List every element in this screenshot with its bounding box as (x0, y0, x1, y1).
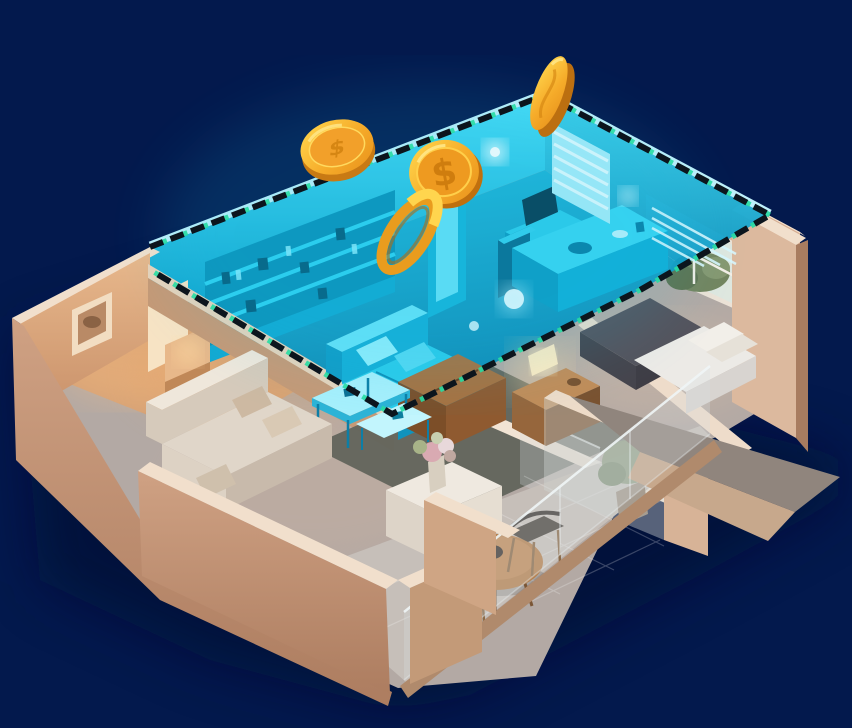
dollar-symbol: $ (328, 134, 346, 162)
hero-illustration: $ $ (0, 0, 852, 728)
apartment-scene-svg: $ $ (0, 0, 852, 728)
